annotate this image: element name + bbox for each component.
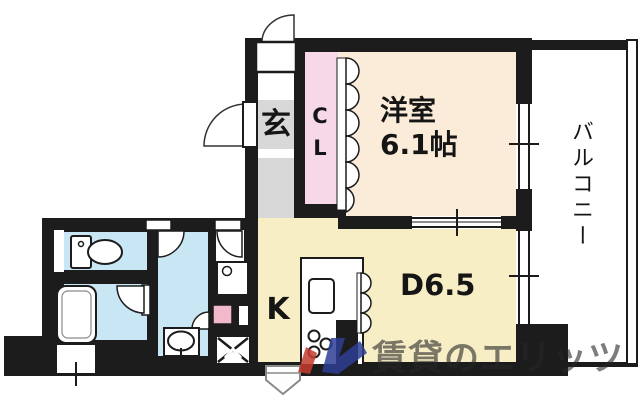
wall-washroom-south (147, 356, 210, 368)
wall-entrance-right (294, 52, 305, 205)
wall-utility-block (208, 218, 258, 368)
wall-top (245, 38, 532, 52)
toilet-floor (64, 230, 147, 272)
bathroom-floor (56, 284, 147, 344)
wall-bath-south (42, 340, 158, 364)
balcony-label: バルコニー (564, 120, 596, 310)
wall-toilet-south (50, 270, 158, 284)
front-door (204, 102, 257, 147)
western-room-size: 6.1帖 (380, 128, 510, 162)
wall-bottom (4, 362, 568, 376)
entrance-step-upper (258, 71, 294, 100)
wall-entrance-left-upper (245, 52, 258, 104)
dining-label: D6.5 (400, 268, 510, 302)
western-room-label: 洋室 6.1帖 (380, 94, 510, 161)
floor-plan: 玄 CL 洋室 6.1帖 D6.5 K バルコニー 賃貸のエリッツ (0, 0, 640, 416)
entrance-step-lower (258, 149, 294, 158)
closet-label: CL (307, 101, 333, 164)
wall-bedroom-south-left (338, 216, 414, 229)
wall-entrance-left-lower (245, 146, 258, 218)
balcony-railing (627, 40, 637, 364)
kitchen-label: K (261, 292, 295, 327)
wall-right-mid (516, 189, 532, 231)
western-room-name: 洋室 (380, 94, 510, 128)
wall-balcony-top (528, 40, 638, 50)
washroom-floor (158, 228, 210, 358)
wall-right-top (516, 52, 532, 104)
wall-right-bottom (516, 324, 568, 367)
entrance-label: 玄 (258, 99, 294, 143)
wall-balcony-bottom (566, 362, 638, 367)
